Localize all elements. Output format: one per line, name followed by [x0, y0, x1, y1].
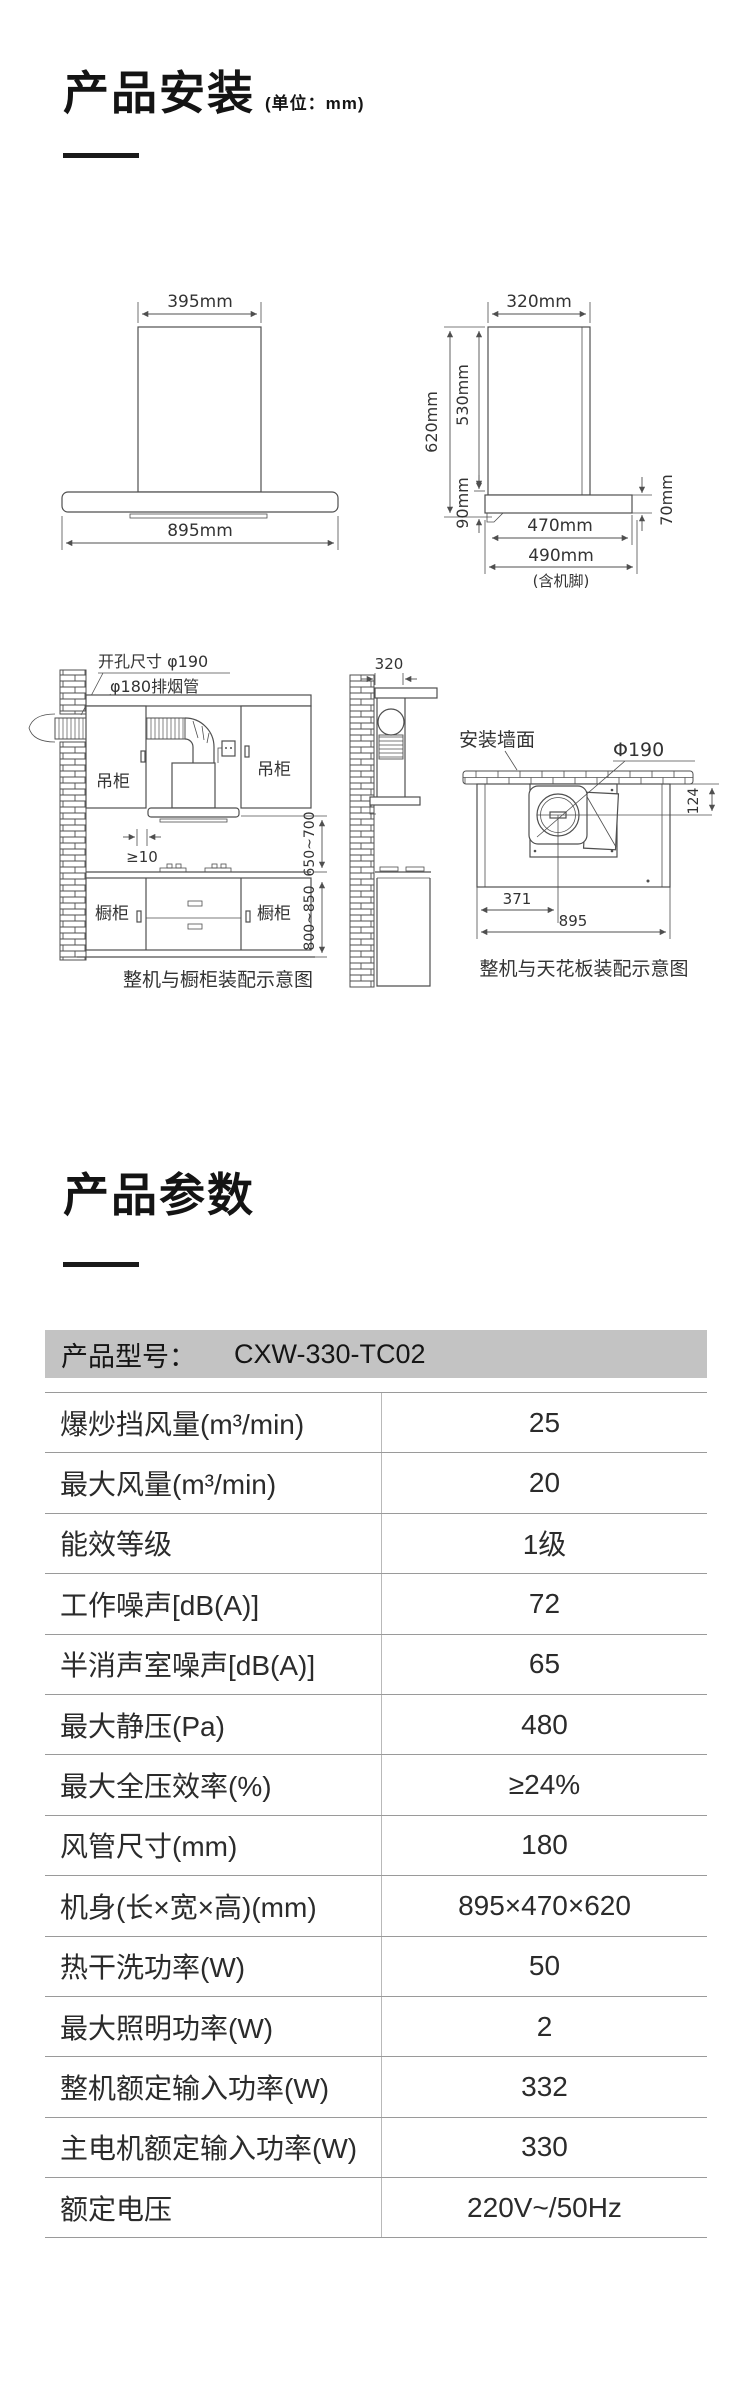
param-label: 爆炒挡风量(m³/min) [45, 1393, 382, 1452]
hanging-cabinet-label-left: 吊柜 [96, 772, 130, 792]
base-cabinet-label-right: 橱柜 [257, 904, 291, 924]
dim-body-height-left: 90mm [453, 477, 472, 529]
side-view-drawing: 320mm 620mm 530mm 90mm 70mm [422, 292, 676, 590]
dim-chimney-height: 530mm [453, 364, 472, 426]
width-dim: 895 [559, 912, 588, 930]
ceiling-assembly-diagram: 320 安装墙面 [350, 655, 719, 987]
gap-dim-label: ≥10 [126, 848, 158, 866]
param-value: 1级 [382, 1523, 707, 1563]
unit-note: (单位：mm) [265, 94, 365, 113]
spec-table: 爆炒挡风量(m³/min) 25 最大风量(m³/min) 20 能效等级 1级… [45, 1392, 707, 2238]
side-depth-dim: 320 [375, 655, 404, 673]
param-value: 72 [382, 1588, 707, 1620]
cabinet-assembly-diagram: 开孔尺寸 φ190 φ180排烟管 吊柜 吊柜 [29, 652, 327, 991]
cabinet-diagram-caption: 整机与橱柜装配示意图 [123, 969, 313, 991]
power-socket [222, 741, 235, 756]
title-underline-dash [63, 153, 139, 158]
param-label: 热干洗功率(W) [45, 1937, 382, 1996]
table-row: 机身(长×宽×高)(mm) 895×470×620 [45, 1876, 707, 1936]
param-value: ≥24% [382, 1769, 707, 1801]
model-label: 产品型号： [61, 1335, 196, 1374]
param-value: 332 [382, 2071, 707, 2103]
hole-diameter-label: Φ190 [613, 739, 664, 761]
table-row: 最大静压(Pa) 480 [45, 1695, 707, 1755]
dim-body-height-right: 70mm [657, 474, 676, 526]
table-row: 主电机额定输入功率(W) 330 [45, 2118, 707, 2178]
parameters-title-text: 产品参数 [63, 1169, 255, 1221]
dim-chimney-width: 395mm [167, 292, 233, 312]
table-row: 最大照明功率(W) 2 [45, 1997, 707, 2057]
title-underline-dash-2 [63, 1262, 139, 1267]
hood-height-range: 650~700 [302, 811, 318, 876]
table-row: 热干洗功率(W) 50 [45, 1937, 707, 1997]
table-row: 爆炒挡风量(m³/min) 25 [45, 1393, 707, 1453]
wall-label: 安装墙面 [459, 729, 535, 751]
param-value: 895×470×620 [382, 1890, 707, 1922]
table-row: 最大风量(m³/min) 20 [45, 1453, 707, 1513]
table-row: 半消声室噪声[dB(A)] 65 [45, 1635, 707, 1695]
param-value: 330 [382, 2131, 707, 2163]
installation-section-title: 产品安装(单位：mm) [63, 70, 365, 116]
param-label: 机身(长×宽×高)(mm) [45, 1876, 382, 1935]
param-value: 2 [382, 2011, 707, 2043]
param-value: 50 [382, 1950, 707, 1982]
dim-depth-top: 320mm [506, 292, 572, 312]
spec-table-header: 产品型号： CXW-330-TC02 [45, 1330, 707, 1378]
param-label: 最大风量(m³/min) [45, 1453, 382, 1512]
table-row: 最大全压效率(%) ≥24% [45, 1755, 707, 1815]
installation-title-text: 产品安装 [63, 67, 255, 119]
table-row: 能效等级 1级 [45, 1514, 707, 1574]
dimension-drawing: 395mm 895mm 320mm 620mm 530 [30, 190, 730, 600]
param-value: 65 [382, 1648, 707, 1680]
center-dim: 371 [503, 890, 532, 908]
table-row: 整机额定输入功率(W) 332 [45, 2057, 707, 2117]
param-value: 220V~/50Hz [382, 2192, 707, 2224]
offset-dim: 124 [686, 788, 702, 815]
param-label: 主电机额定输入功率(W) [45, 2118, 382, 2177]
dim-depth-with-feet: 490mm [528, 546, 594, 566]
duct-label: φ180排烟管 [110, 677, 199, 696]
dim-body-width: 895mm [167, 521, 233, 541]
param-label: 风管尺寸(mm) [45, 1816, 382, 1875]
dim-body-depth: 470mm [527, 516, 593, 536]
param-value: 480 [382, 1709, 707, 1741]
param-label: 整机额定输入功率(W) [45, 2057, 382, 2116]
param-label: 工作噪声[dB(A)] [45, 1574, 382, 1633]
product-detail-page: 产品安装(单位：mm) 395mm 895mm 320mm [0, 0, 750, 2383]
param-label: 能效等级 [45, 1514, 382, 1573]
param-label: 最大全压效率(%) [45, 1755, 382, 1814]
base-cabinet-label-left: 橱柜 [95, 904, 129, 924]
param-label: 最大静压(Pa) [45, 1695, 382, 1754]
dim-total-height: 620mm [422, 391, 441, 453]
ceiling-diagram-caption: 整机与天花板装配示意图 [479, 958, 688, 980]
table-row: 额定电压 220V~/50Hz [45, 2178, 707, 2238]
hole-size-label: 开孔尺寸 φ190 [98, 652, 208, 671]
parameters-section-title: 产品参数 [63, 1172, 255, 1218]
param-value: 20 [382, 1467, 707, 1499]
param-label: 额定电压 [45, 2178, 382, 2237]
front-view-drawing: 395mm 895mm [62, 292, 338, 550]
param-value: 25 [382, 1407, 707, 1439]
hanging-cabinet-label-right: 吊柜 [257, 760, 291, 780]
param-label: 最大照明功率(W) [45, 1997, 382, 2056]
model-value: CXW-330-TC02 [234, 1339, 426, 1370]
param-label: 半消声室噪声[dB(A)] [45, 1635, 382, 1694]
counter-height-range: 800~850 [302, 885, 318, 950]
installation-diagrams: 开孔尺寸 φ190 φ180排烟管 吊柜 吊柜 [25, 615, 725, 1007]
feet-note: (含机脚) [533, 572, 590, 590]
table-row: 工作噪声[dB(A)] 72 [45, 1574, 707, 1634]
table-row: 风管尺寸(mm) 180 [45, 1816, 707, 1876]
param-value: 180 [382, 1829, 707, 1861]
cooktop-burners [160, 864, 231, 872]
